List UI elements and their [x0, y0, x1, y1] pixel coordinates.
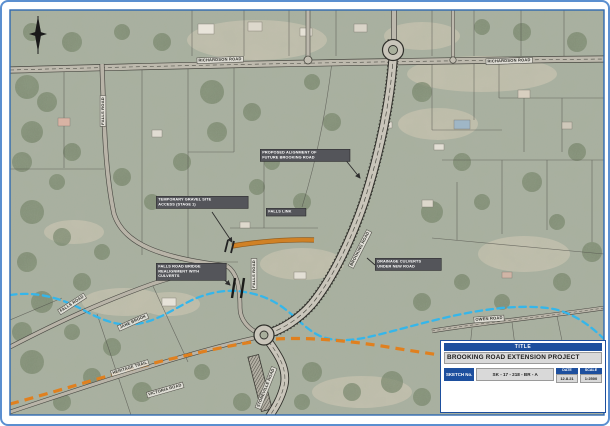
title-header-bar: TITLE [444, 343, 602, 351]
scale-field: SCALE 1:2500 [580, 368, 602, 381]
disclaimer-row: Whilst all care has been taken in prepar… [444, 388, 602, 396]
sketch-no-label: SKETCH No. [444, 368, 474, 381]
sketch-page: RICHARDSON ROADRICHARDSON ROADFALLS ROAD… [0, 0, 610, 426]
title-block-fields: SKETCH No. SK - 17 - 218 - BR - A DATE 1… [444, 368, 602, 381]
date-value: 12.8.21 [556, 374, 578, 383]
date-field: DATE 12.8.21 [556, 368, 578, 381]
sketch-no-value: SK - 17 - 218 - BR - A [476, 368, 554, 381]
project-title: BROOKING ROAD EXTENSION PROJECT [444, 352, 602, 364]
scale-value: 1:2500 [580, 374, 602, 383]
title-block: TITLE BROOKING ROAD EXTENSION PROJECT SK… [440, 340, 606, 413]
